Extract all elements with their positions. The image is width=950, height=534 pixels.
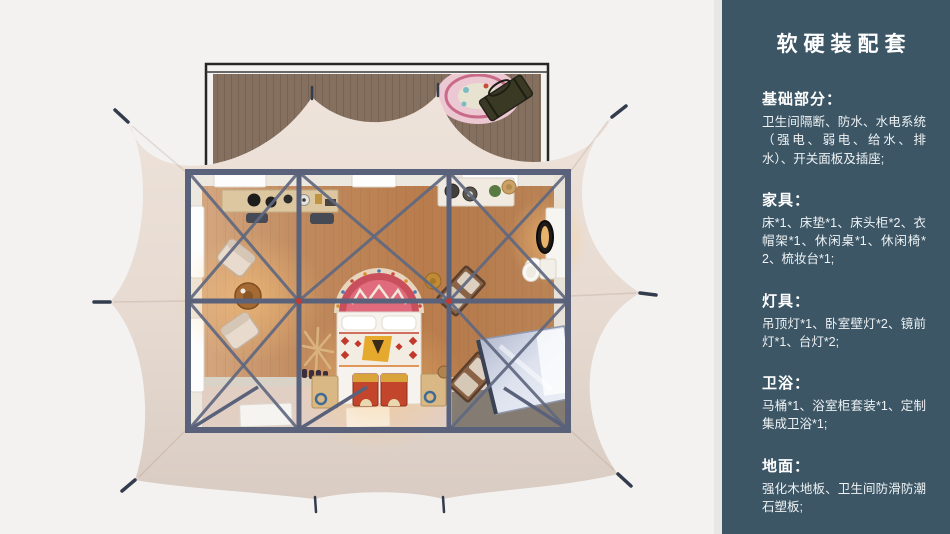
frame-joint — [446, 298, 452, 304]
kettle — [284, 195, 293, 204]
info-panel: 软硬装配套 基础部分： 卫生间隔断、防水、水电系统（强电、弱电、给水、排水）、开… — [722, 0, 950, 534]
infographic: 软硬装配套 基础部分： 卫生间隔断、防水、水电系统（强电、弱电、给水、排水）、开… — [0, 0, 950, 534]
vanity-mirror — [537, 221, 553, 253]
panel-title: 软硬装配套 — [762, 28, 926, 58]
section-heading: 家具： — [762, 189, 926, 210]
floor-plan-render — [0, 0, 714, 534]
coffee-table — [235, 283, 261, 309]
double-bed — [337, 312, 421, 404]
nightstand-right — [421, 374, 446, 406]
pillow — [382, 316, 416, 330]
section-heading: 基础部分： — [762, 88, 926, 109]
nightstand-left — [312, 376, 338, 408]
floor-plan-area — [0, 0, 714, 534]
section-basics: 基础部分： 卫生间隔断、防水、水电系统（强电、弱电、给水、排水）、开关面板及插座… — [762, 88, 926, 168]
section-body: 强化木地板、卫生间防滑防潮石塑板; — [762, 480, 926, 517]
pillow — [342, 316, 376, 330]
gold-box — [315, 194, 322, 204]
section-lighting: 灯具： 吊顶灯*1、卧室壁灯*2、镜前灯*1、台灯*2; — [762, 290, 926, 352]
section-body: 卫生间隔断、防水、水电系统（强电、弱电、给水、排水）、开关面板及插座; — [762, 113, 926, 168]
section-heading: 地面： — [762, 455, 926, 476]
section-furniture: 家具： 床*1、床垫*1、床头柜*2、衣帽架*1、休闲桌*1、休闲椅*2、梳妆台… — [762, 189, 926, 269]
plant — [489, 185, 501, 197]
panel-divider — [714, 0, 722, 534]
section-body: 马桶*1、浴室柜套装*1、定制集成卫浴*1; — [762, 397, 926, 434]
frame-joint — [296, 298, 302, 304]
section-bathroom: 卫浴： 马桶*1、浴室柜套装*1、定制集成卫浴*1; — [762, 372, 926, 434]
section-heading: 卫浴： — [762, 372, 926, 393]
section-flooring: 地面： 强化木地板、卫生间防滑防潮石塑板; — [762, 455, 926, 517]
section-body: 床*1、床垫*1、床头柜*2、衣帽架*1、休闲桌*1、休闲椅*2、梳妆台*1; — [762, 214, 926, 269]
section-body: 吊顶灯*1、卧室壁灯*2、镜前灯*1、台灯*2; — [762, 315, 926, 352]
hat — [248, 194, 261, 207]
section-heading: 灯具： — [762, 290, 926, 311]
